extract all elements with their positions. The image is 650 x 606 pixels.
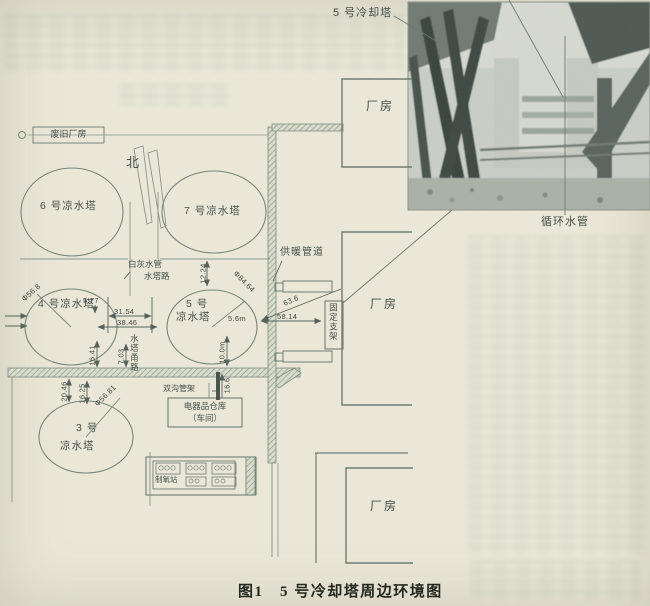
dim-7-03: 7.03 (116, 349, 125, 365)
dim-58-14: 58.14 (277, 312, 297, 321)
dim-31-54: 31.54 (114, 307, 134, 316)
factory-mid-label: 厂房 (370, 290, 386, 318)
photo-label-pipe: 循环水管 (541, 216, 589, 228)
dim-16-25: 16.25 (78, 383, 87, 403)
factory-top-label: 厂房 (366, 92, 382, 120)
dim-38-46: 38.46 (117, 318, 137, 327)
heating-pipe-horizontal (272, 124, 343, 131)
heating-pipe-vertical (268, 127, 276, 463)
warehouse-label-1: 电器品仓库 (168, 402, 242, 411)
dim-16-41: 16.41 (88, 345, 97, 365)
leader-photo-to-plan (343, 210, 452, 303)
photo-cooling-tower (408, 2, 650, 210)
tower-3-label-1: 3 号 (76, 423, 98, 435)
pipe-rack-tick (216, 372, 220, 400)
tower-5-label-1: 5 号 (186, 299, 208, 311)
tower-5-label-2: 凉水塔 (176, 312, 211, 324)
lime-pipe-label: 白灰水管 (128, 260, 162, 269)
road-horizontal (8, 368, 300, 377)
abandoned-building-label: 废旧厂房 (34, 130, 103, 140)
north-label: 北 (126, 156, 139, 170)
tower-3-label-2: 凉水塔 (60, 441, 95, 453)
dim-12-24: 12.24 (199, 263, 208, 283)
pole-flag-2 (148, 150, 166, 228)
heating-pipe-label: 供暖管道 (280, 247, 324, 258)
pipe-stub-lower (283, 351, 332, 362)
dim-16-6: 16.6 (222, 378, 231, 394)
photo-label-tower: 5 号冷却塔 (333, 7, 392, 19)
tower-road-label: 水塔路 (144, 272, 170, 281)
scanned-figure-page: 5 号冷却塔 循环水管 北 废旧厂房 6 号凉水塔 7 号凉水塔 4 号凉水塔 … (0, 0, 650, 606)
tower-path-label: 水塔甬路 (129, 334, 138, 378)
tower-7-label: 7 号凉水塔 (184, 206, 241, 218)
fixed-support-label: 固定支架 (328, 303, 337, 349)
warehouse-label-2: （车间） (168, 414, 242, 423)
factory-mid-outline (342, 232, 412, 405)
oxygen-label: 制氧站 (155, 476, 178, 484)
dim-20-46: 20.46 (60, 381, 69, 401)
dim-5-6m: 5.6m (228, 314, 246, 323)
factory-bottom-label: 厂房 (370, 492, 386, 520)
pipe-rack-label: 双沟管架 (163, 385, 195, 394)
dim-5-77: 5.77 (83, 296, 99, 305)
tower-6-label: 6 号凉水塔 (40, 201, 97, 213)
leader-lime (124, 272, 130, 279)
dim-10-0m: 10.0m (218, 341, 227, 363)
figure-caption: 图1 5 号冷却塔周边环境图 (238, 584, 443, 601)
survey-marker (19, 132, 26, 139)
pipe-stub-upper (283, 281, 332, 292)
